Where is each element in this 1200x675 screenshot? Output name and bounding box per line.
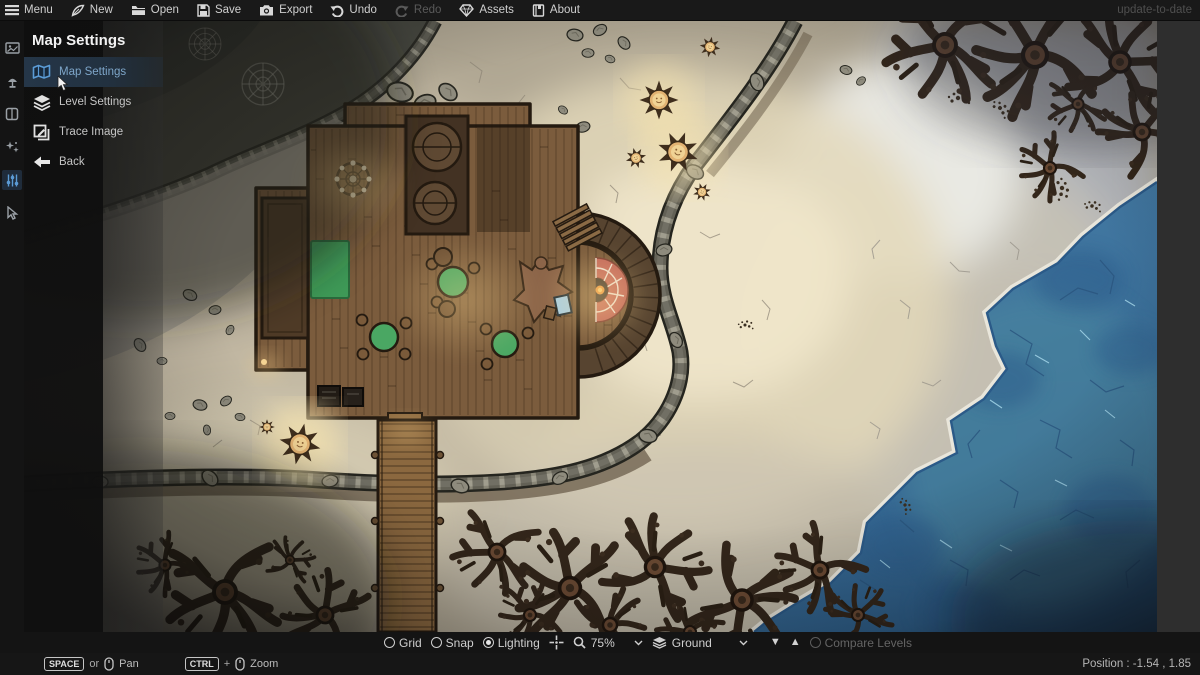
feather-icon bbox=[71, 4, 85, 17]
lighting-toggle[interactable]: Lighting bbox=[483, 636, 540, 650]
tool-strip bbox=[0, 21, 24, 654]
hint-separator: + bbox=[224, 658, 230, 670]
chevron-down-icon bbox=[739, 640, 748, 646]
undo-arrow-icon bbox=[330, 4, 344, 17]
terrain-tool-icon[interactable] bbox=[2, 71, 22, 91]
menu-button[interactable]: Menu bbox=[5, 4, 53, 16]
pan-hint: SPACE or Pan bbox=[44, 657, 139, 672]
snap-label: Snap bbox=[446, 636, 474, 650]
panel-item-back[interactable]: Back bbox=[24, 147, 163, 177]
update-status: update-to-date bbox=[1117, 4, 1192, 16]
panel-item-label: Map Settings bbox=[59, 66, 126, 78]
hamburger-icon bbox=[5, 4, 19, 16]
menu-label: Undo bbox=[349, 4, 377, 16]
canvas-out-of-bounds bbox=[1157, 21, 1200, 632]
snap-radio-icon bbox=[431, 637, 442, 648]
building-tool-icon[interactable] bbox=[2, 104, 22, 124]
zoom-value: 75% bbox=[591, 636, 615, 650]
menu-label: Menu bbox=[24, 4, 53, 16]
menu-label: Save bbox=[215, 4, 241, 16]
back-arrow-icon bbox=[32, 155, 51, 169]
center-view-icon[interactable] bbox=[549, 635, 564, 650]
zoom-hint-label: Zoom bbox=[250, 658, 278, 670]
compare-levels-toggle[interactable]: Compare Levels bbox=[810, 636, 912, 650]
grid-label: Grid bbox=[399, 636, 422, 650]
level-up-button[interactable]: ▲ bbox=[790, 637, 801, 648]
folder-icon bbox=[131, 4, 146, 16]
grid-toggle[interactable]: Grid bbox=[384, 636, 422, 650]
panel-item-label: Back bbox=[59, 156, 85, 168]
menu-label: About bbox=[550, 4, 580, 16]
panel-item-label: Trace Image bbox=[59, 126, 123, 138]
magnifier-icon bbox=[573, 636, 586, 649]
book-icon bbox=[532, 4, 545, 17]
level-down-button[interactable]: ▼ bbox=[770, 637, 781, 648]
ctrl-keycap: CTRL bbox=[185, 657, 219, 672]
settings-tool-icon[interactable] bbox=[2, 170, 22, 190]
assets-button[interactable]: Assets bbox=[459, 4, 514, 17]
level-layers-icon bbox=[652, 636, 667, 649]
lighting-radio-icon bbox=[483, 637, 494, 648]
hint-separator: or bbox=[89, 658, 99, 670]
settings-panel: Map Settings Map Settings Level Settings… bbox=[24, 21, 163, 632]
panel-item-label: Level Settings bbox=[59, 96, 131, 108]
layers-icon bbox=[32, 94, 51, 111]
about-button[interactable]: About bbox=[532, 4, 580, 17]
mouse-icon bbox=[104, 657, 114, 671]
panel-title: Map Settings bbox=[24, 21, 163, 57]
gem-icon bbox=[459, 4, 474, 17]
lighting-label: Lighting bbox=[498, 636, 540, 650]
zoom-hint: CTRL + Zoom bbox=[185, 657, 279, 672]
undo-button[interactable]: Undo bbox=[330, 4, 377, 17]
status-bar: SPACE or Pan CTRL + Zoom Position : -1.5… bbox=[0, 653, 1200, 675]
redo-arrow-icon bbox=[395, 4, 409, 17]
new-button[interactable]: New bbox=[71, 4, 113, 17]
effects-tool-icon[interactable] bbox=[2, 137, 22, 157]
panel-item-map-settings[interactable]: Map Settings bbox=[24, 57, 163, 87]
menu-label: Redo bbox=[414, 4, 442, 16]
floppy-icon bbox=[197, 4, 210, 17]
mouse-icon bbox=[235, 657, 245, 671]
redo-button[interactable]: Redo bbox=[395, 4, 442, 17]
map-canvas[interactable] bbox=[24, 21, 1157, 632]
level-select[interactable]: Ground bbox=[652, 636, 748, 650]
menu-label: New bbox=[90, 4, 113, 16]
space-keycap: SPACE bbox=[44, 657, 84, 672]
panel-item-level-settings[interactable]: Level Settings bbox=[24, 87, 163, 117]
level-value: Ground bbox=[672, 636, 712, 650]
chevron-down-icon bbox=[634, 640, 643, 646]
map-artwork bbox=[24, 21, 1157, 632]
pan-hint-label: Pan bbox=[119, 658, 139, 670]
compare-label: Compare Levels bbox=[825, 636, 912, 650]
select-tool-icon[interactable] bbox=[2, 203, 22, 223]
shortcut-hints: SPACE or Pan CTRL + Zoom bbox=[44, 657, 278, 672]
export-button[interactable]: Export bbox=[259, 4, 312, 16]
menu-label: Assets bbox=[479, 4, 514, 16]
app-window: { "app": { "update_status": "update-to-d… bbox=[0, 0, 1200, 675]
map-icon bbox=[32, 64, 51, 80]
bottom-toolbar: Grid Snap Lighting 75% Ground ▼ ▲ Compar… bbox=[0, 632, 1200, 653]
menu-label: Export bbox=[279, 4, 312, 16]
panel-item-trace-image[interactable]: Trace Image bbox=[24, 117, 163, 147]
zoom-select[interactable]: 75% bbox=[573, 636, 643, 650]
trace-image-icon bbox=[32, 124, 51, 141]
snap-toggle[interactable]: Snap bbox=[431, 636, 474, 650]
open-button[interactable]: Open bbox=[131, 4, 179, 16]
camera-icon bbox=[259, 4, 274, 16]
menu-label: Open bbox=[151, 4, 179, 16]
map-tool-icon[interactable] bbox=[2, 38, 22, 58]
compare-radio-icon bbox=[810, 637, 821, 648]
grid-radio-icon bbox=[384, 637, 395, 648]
menu-bar: Menu New Open Save Export Undo Redo Asse… bbox=[0, 0, 1200, 21]
save-button[interactable]: Save bbox=[197, 4, 241, 17]
vignette bbox=[24, 21, 1157, 632]
position-readout: Position : -1.54 , 1.85 bbox=[1082, 658, 1191, 670]
